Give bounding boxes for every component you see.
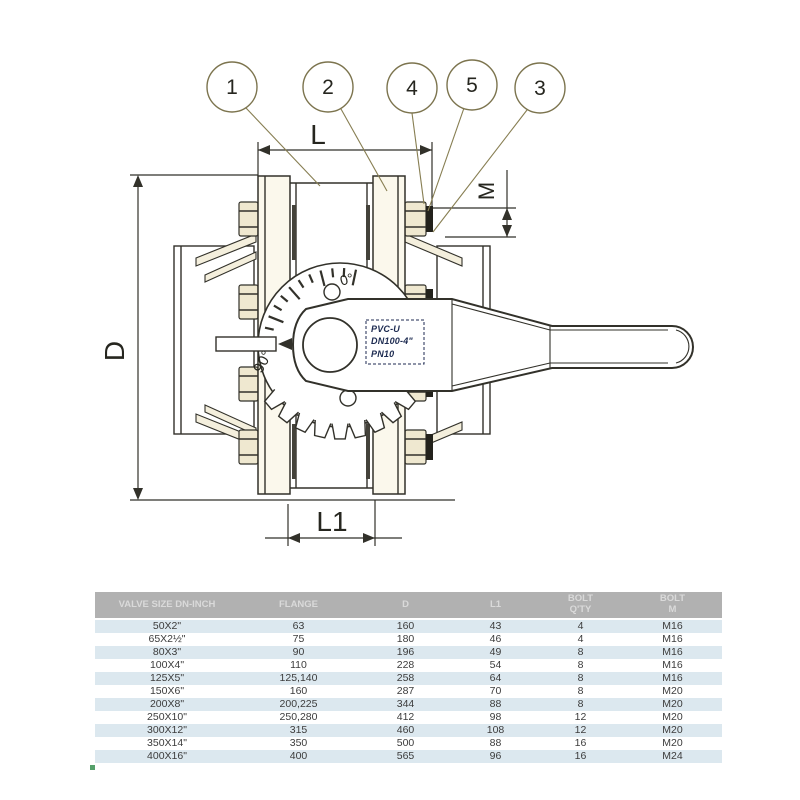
column-header: L1 (453, 592, 538, 619)
dim-D-label: D (99, 341, 130, 361)
leader-line-1 (246, 108, 320, 186)
spec-cell: M16 (623, 659, 722, 672)
svg-text:4: 4 (406, 77, 418, 100)
spec-cell: 400X16" (95, 750, 239, 763)
dim-L1-label: L1 (316, 506, 347, 537)
spec-cell: 75 (239, 633, 358, 646)
svg-text:3: 3 (534, 77, 546, 100)
spec-cell: 8 (538, 672, 623, 685)
spec-cell: 8 (538, 698, 623, 711)
spec-cell: 12 (538, 724, 623, 737)
spec-cell: M16 (623, 646, 722, 659)
spec-cell: 350X14" (95, 737, 239, 750)
balloon-callout-3: 3 (515, 63, 565, 113)
spec-cell: 4 (538, 619, 623, 633)
spec-cell: 258 (358, 672, 453, 685)
spec-table: VALVE SIZE DN-INCHFLANGEDL1BOLTQ'TYBOLTM… (95, 592, 722, 763)
valve-handle: PVC-U DN100-4" PN10 (293, 299, 693, 391)
spec-cell: 8 (538, 646, 623, 659)
spec-cell: 100X4" (95, 659, 239, 672)
spec-cell: M16 (623, 633, 722, 646)
spec-cell: 110 (239, 659, 358, 672)
balloon-callout-1: 1 (207, 62, 257, 112)
spec-cell: 196 (358, 646, 453, 659)
spec-cell: 46 (453, 633, 538, 646)
spec-cell: 50X2" (95, 619, 239, 633)
table-row: 200X8"200,225344888M20 (95, 698, 722, 711)
spec-cell: M16 (623, 672, 722, 685)
spec-cell: 250,280 (239, 711, 358, 724)
spec-cell: M20 (623, 698, 722, 711)
spec-cell: 49 (453, 646, 538, 659)
spec-cell: 350 (239, 737, 358, 750)
spec-table-body: 50X2"63160434M1665X2½"75180464M1680X3"90… (95, 619, 722, 763)
spec-cell: 200X8" (95, 698, 239, 711)
spec-cell: 12 (538, 711, 623, 724)
spec-cell: 287 (358, 685, 453, 698)
table-row: 80X3"90196498M16 (95, 646, 722, 659)
spec-cell: 344 (358, 698, 453, 711)
table-row: 300X12"31546010812M20 (95, 724, 722, 737)
spec-cell: 460 (358, 724, 453, 737)
column-header: D (358, 592, 453, 619)
spec-cell: 150X6" (95, 685, 239, 698)
svg-text:1: 1 (226, 76, 238, 99)
column-header: BOLTM (623, 592, 722, 619)
green-marker (90, 765, 95, 770)
spec-cell: 90 (239, 646, 358, 659)
dimension-L1: L1 (265, 500, 402, 546)
leader-line-5 (428, 108, 464, 211)
column-header: BOLTQ'TY (538, 592, 623, 619)
spec-cell: 400 (239, 750, 358, 763)
table-row: 50X2"63160434M16 (95, 619, 722, 633)
spec-cell: M20 (623, 724, 722, 737)
table-row: 400X16"4005659616M24 (95, 750, 722, 763)
spec-cell: 160 (239, 685, 358, 698)
spec-cell: 160 (358, 619, 453, 633)
spec-cell: 300X12" (95, 724, 239, 737)
table-row: 350X14"3505008816M20 (95, 737, 722, 750)
table-row: 65X2½"75180464M16 (95, 633, 722, 646)
spec-cell: 98 (453, 711, 538, 724)
spec-cell: 108 (453, 724, 538, 737)
spec-cell: M20 (623, 685, 722, 698)
spec-table-header-row: VALVE SIZE DN-INCHFLANGEDL1BOLTQ'TYBOLTM (95, 592, 722, 619)
spec-cell: M20 (623, 711, 722, 724)
svg-text:5: 5 (466, 74, 478, 97)
handle-label-line3: PN10 (371, 349, 394, 359)
spec-cell: 70 (453, 685, 538, 698)
table-row: 100X4"110228548M16 (95, 659, 722, 672)
spec-cell: 63 (239, 619, 358, 633)
spec-cell: 565 (358, 750, 453, 763)
balloon-callout-2: 2 (303, 62, 353, 112)
spec-cell: 125,140 (239, 672, 358, 685)
handle-label-line1: PVC-U (371, 324, 400, 334)
column-header: VALVE SIZE DN-INCH (95, 592, 239, 619)
handle-hub-hole (303, 318, 357, 372)
stem-stud (216, 337, 276, 351)
dim-M-label: M (474, 182, 499, 200)
spec-cell: M24 (623, 750, 722, 763)
spec-cell: M20 (623, 737, 722, 750)
spec-cell: 88 (453, 737, 538, 750)
valve-spec-sheet: 0° 90° PVC-U DN100-4" PN10 (0, 0, 800, 800)
spec-cell: 88 (453, 698, 538, 711)
table-row: 150X6"160287708M20 (95, 685, 722, 698)
spec-cell: 65X2½" (95, 633, 239, 646)
spec-cell: 500 (358, 737, 453, 750)
table-row: 250X10"250,2804129812M20 (95, 711, 722, 724)
balloon-callout-4: 4 (387, 63, 437, 113)
handle-label-line2: DN100-4" (371, 336, 413, 346)
column-header: FLANGE (239, 592, 358, 619)
spec-cell: 80X3" (95, 646, 239, 659)
leader-line-4 (412, 113, 424, 204)
spec-cell: 4 (538, 633, 623, 646)
spec-cell: 250X10" (95, 711, 239, 724)
spec-cell: 43 (453, 619, 538, 633)
spec-cell: 8 (538, 659, 623, 672)
spec-cell: M16 (623, 619, 722, 633)
spec-cell: 200,225 (239, 698, 358, 711)
balloon-callout-5: 5 (447, 60, 497, 110)
spec-cell: 16 (538, 737, 623, 750)
spec-cell: 64 (453, 672, 538, 685)
spec-cell: 54 (453, 659, 538, 672)
spec-cell: 228 (358, 659, 453, 672)
valve-technical-drawing: 0° 90° PVC-U DN100-4" PN10 (0, 0, 800, 585)
table-row: 125X5"125,140258648M16 (95, 672, 722, 685)
spec-cell: 180 (358, 633, 453, 646)
handle-marking-label: PVC-U DN100-4" PN10 (366, 320, 424, 364)
dimension-M: M (433, 170, 516, 237)
leader-line-3 (433, 110, 527, 232)
spec-cell: 8 (538, 685, 623, 698)
spec-cell: 16 (538, 750, 623, 763)
spec-cell: 125X5" (95, 672, 239, 685)
spec-cell: 412 (358, 711, 453, 724)
svg-text:2: 2 (322, 76, 334, 99)
spec-cell: 96 (453, 750, 538, 763)
dim-L-label: L (310, 119, 326, 150)
spec-cell: 315 (239, 724, 358, 737)
